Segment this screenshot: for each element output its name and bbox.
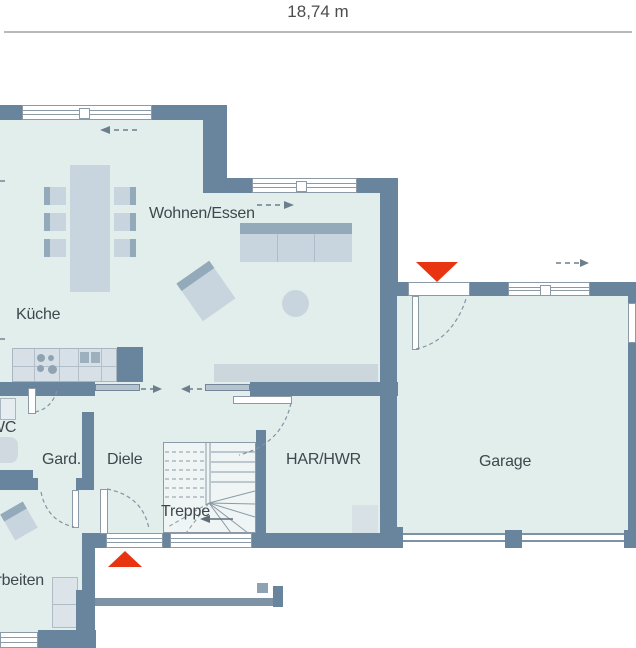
room-label-wohnen-essen: Wohnen/Essen xyxy=(149,205,255,223)
door-swing-arc xyxy=(35,299,466,529)
room-label-diele: Diele xyxy=(107,451,142,469)
room-label-har-hwr: HAR/HWR xyxy=(286,451,361,469)
room-label-wc: WC xyxy=(0,419,16,437)
room-label-treppe: Treppe xyxy=(161,503,210,521)
room-label-garderobe: Gard. xyxy=(42,451,81,469)
opening-direction-arrow-icon xyxy=(100,126,589,393)
dimension-label: 18,74 m xyxy=(0,2,636,22)
plan-symbols xyxy=(0,0,636,648)
room-label-garage: Garage xyxy=(479,453,531,471)
entrance-marker-icon xyxy=(108,262,458,567)
room-label-kueche: Küche xyxy=(16,306,60,324)
room-label-arbeiten: Arbeiten xyxy=(0,572,44,590)
floor-plan: 18,74 m xyxy=(0,0,636,648)
opening-direction-line xyxy=(0,130,582,389)
